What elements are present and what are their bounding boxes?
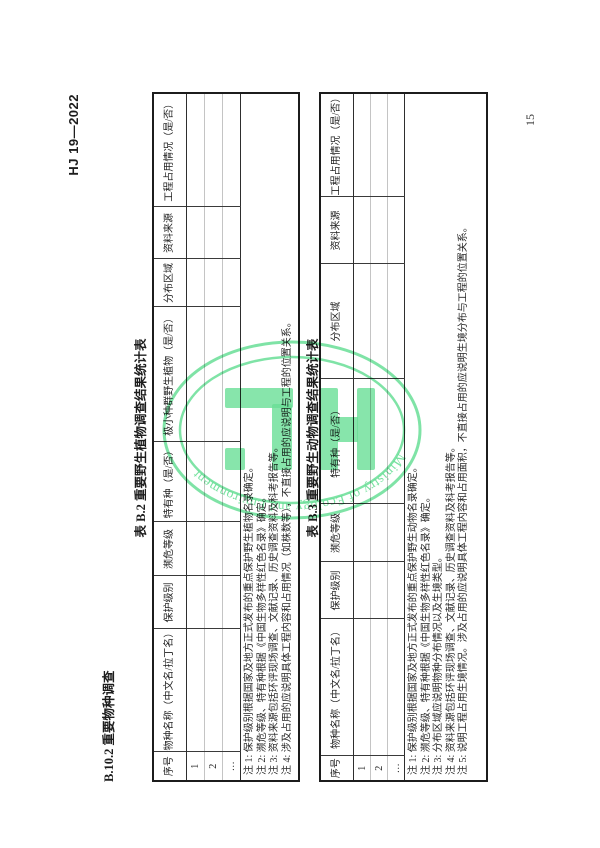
column-header: 工程占用情况（是/否） xyxy=(320,93,354,197)
empty-cell xyxy=(371,619,388,756)
empty-cell xyxy=(223,522,241,576)
empty-cell xyxy=(354,197,371,264)
table-b3-wild-animals: 序号 物种名称（中文名/拉丁名） 保护级别 濒危等级 特有种（是/否） 分布区域… xyxy=(319,92,488,782)
column-header: 保护级别 xyxy=(320,562,354,619)
column-header: 物种名称（中文名/拉丁名） xyxy=(320,619,354,756)
empty-cell xyxy=(205,207,223,259)
row-number: 1 xyxy=(187,752,205,781)
table-row: 2 xyxy=(205,93,223,781)
empty-cell xyxy=(354,264,371,379)
empty-cell xyxy=(187,259,205,307)
empty-cell xyxy=(223,442,241,522)
landscape-content: HJ 19—2022 B.10.2 重要物种调查 表 B.2 重要野生植物调查结… xyxy=(0,0,600,848)
empty-cell xyxy=(371,264,388,379)
column-header: 保护级别 xyxy=(153,576,187,629)
column-header: 物种名称（中文名/拉丁名） xyxy=(153,629,187,752)
empty-cell xyxy=(223,259,241,307)
column-header: 特有种（是/否） xyxy=(320,379,354,504)
table-row: … xyxy=(388,93,405,781)
empty-cell xyxy=(388,504,405,562)
column-header: 濒危等级 xyxy=(153,522,187,576)
table-notes: 注 1: 保护级别根据国家及地方正式发布的重点保护野生动物名录确定。 注 2: … xyxy=(405,93,488,781)
section-heading: B.10.2 重要物种调查 xyxy=(98,671,117,782)
document-page: HJ 19—2022 B.10.2 重要物种调查 表 B.2 重要野生植物调查结… xyxy=(0,0,600,848)
empty-cell xyxy=(354,619,371,756)
empty-cell xyxy=(223,93,241,207)
table-b2-wild-plants: 序号 物种名称（中文名/拉丁名） 保护级别 濒危等级 特有种（是/否） 极小种群… xyxy=(152,92,300,782)
empty-cell xyxy=(187,522,205,576)
table-b2-notes-row: 注 1: 保护级别根据国家及地方正式发布的重点保护野生植物名录确定。 注 2: … xyxy=(241,93,300,781)
page-number: 15 xyxy=(523,114,538,126)
empty-cell xyxy=(205,307,223,442)
empty-cell xyxy=(388,93,405,197)
note: 注 4: 涉及占用的应说明具体工程内容和占用情况（如株数等），不直接占用的应说明… xyxy=(282,99,295,775)
note: 注 3: 分布区域应说明物种分布情况以及生境类型。 xyxy=(433,99,446,775)
table-row: 1 xyxy=(354,93,371,781)
empty-cell xyxy=(187,442,205,522)
row-number: 1 xyxy=(354,756,371,781)
empty-cell xyxy=(187,93,205,207)
note: 注 2: 濒危等级、特有种根据《中国生物多样性红色名录》确定。 xyxy=(257,99,270,775)
row-number: 2 xyxy=(371,756,388,781)
column-header: 分布区域 xyxy=(153,259,187,307)
empty-cell xyxy=(223,207,241,259)
empty-cell xyxy=(388,379,405,504)
column-header: 序号 xyxy=(153,752,187,781)
note: 注 1: 保护级别根据国家及地方正式发布的重点保护野生植物名录确定。 xyxy=(244,99,257,775)
column-header: 极小种群野生植物（是/否） xyxy=(153,307,187,442)
empty-cell xyxy=(388,197,405,264)
table-b2-title: 表 B.2 重要野生植物调查结果统计表 xyxy=(130,94,149,782)
note: 注 3: 资料来源包括环评现场调查、文献记录、历史调查资料及科考报告等。 xyxy=(269,99,282,775)
empty-cell xyxy=(371,197,388,264)
empty-cell xyxy=(354,379,371,504)
row-number: … xyxy=(223,752,241,781)
table-notes: 注 1: 保护级别根据国家及地方正式发布的重点保护野生植物名录确定。 注 2: … xyxy=(241,93,300,781)
empty-cell xyxy=(371,504,388,562)
empty-cell xyxy=(371,379,388,504)
empty-cell xyxy=(187,207,205,259)
note: 注 4: 资料来源包括环评现场调查、文献记录、历史调查资料及科考报告等。 xyxy=(446,99,459,775)
column-header: 濒危等级 xyxy=(320,504,354,562)
empty-cell xyxy=(354,504,371,562)
empty-cell xyxy=(205,576,223,629)
table-b3-header-row: 序号 物种名称（中文名/拉丁名） 保护级别 濒危等级 特有种（是/否） 分布区域… xyxy=(320,93,354,781)
empty-cell xyxy=(205,259,223,307)
note: 注 2: 濒危等级、特有种根据《中国生物多样性红色名录》确定。 xyxy=(421,99,434,775)
empty-cell xyxy=(388,619,405,756)
empty-cell xyxy=(223,629,241,752)
column-header: 工程占用情况（是/否） xyxy=(153,93,187,207)
doc-number: HJ 19—2022 xyxy=(66,94,81,176)
table-b3-notes-row: 注 1: 保护级别根据国家及地方正式发布的重点保护野生动物名录确定。 注 2: … xyxy=(405,93,488,781)
empty-cell xyxy=(205,93,223,207)
empty-cell xyxy=(388,264,405,379)
row-number: … xyxy=(388,756,405,781)
empty-cell xyxy=(354,93,371,197)
empty-cell xyxy=(187,576,205,629)
empty-cell xyxy=(371,93,388,197)
column-header: 特有种（是/否） xyxy=(153,442,187,522)
column-header: 序号 xyxy=(320,756,354,781)
table-row: 2 xyxy=(371,93,388,781)
table-row: … xyxy=(223,93,241,781)
note: 注 5: 说明工程占用生境情况。涉及占用的应说明具体工程内容和占用面积，不直接占… xyxy=(458,99,471,775)
table-b2-header-row: 序号 物种名称（中文名/拉丁名） 保护级别 濒危等级 特有种（是/否） 极小种群… xyxy=(153,93,187,781)
table-row: 1 xyxy=(187,93,205,781)
empty-cell xyxy=(187,629,205,752)
empty-cell xyxy=(187,307,205,442)
empty-cell xyxy=(205,442,223,522)
row-number: 2 xyxy=(205,752,223,781)
empty-cell xyxy=(223,307,241,442)
note: 注 1: 保护级别根据国家及地方正式发布的重点保护野生动物名录确定。 xyxy=(408,99,421,775)
empty-cell xyxy=(205,522,223,576)
empty-cell xyxy=(223,576,241,629)
column-header: 资料来源 xyxy=(153,207,187,259)
column-header: 分布区域 xyxy=(320,264,354,379)
empty-cell xyxy=(371,562,388,619)
empty-cell xyxy=(354,562,371,619)
column-header: 资料来源 xyxy=(320,197,354,264)
empty-cell xyxy=(388,562,405,619)
empty-cell xyxy=(205,629,223,752)
